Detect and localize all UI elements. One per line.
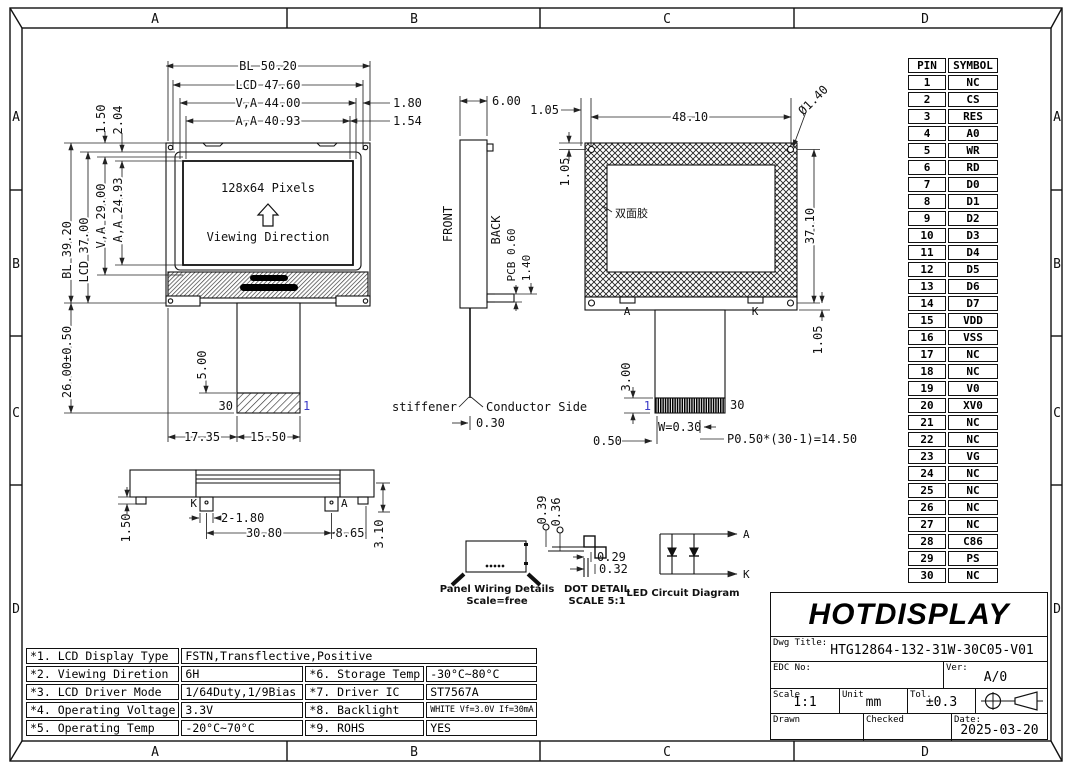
pin-table-cell-symbol: D6 — [948, 279, 998, 294]
dot-detail-scale: SCALE 5:1 — [569, 596, 626, 607]
pin-table-row: 28C86 — [908, 534, 998, 549]
pin-table-cell-symbol: C86 — [948, 534, 998, 549]
pin-table-cell-symbol: RD — [948, 160, 998, 175]
front-label: FRONT — [441, 206, 455, 242]
bottom-pin-a-label: A — [341, 497, 348, 510]
zone-right-d: D — [1053, 602, 1061, 617]
pin-table-header-row: PIN SYMBOL — [908, 58, 998, 73]
spec-value: ST7567A — [426, 684, 537, 700]
zone-top-c: C — [663, 12, 671, 27]
zone-right-a: A — [1053, 110, 1061, 125]
dim-aa-height: A,A 24.93 — [111, 177, 125, 242]
dim-30-80: 30.80 — [246, 526, 282, 540]
pin-table-row: 19V0 — [908, 381, 998, 396]
dim-1-05-top: 1.05 — [530, 103, 559, 117]
pin-table-cell-pin: 10 — [908, 228, 946, 243]
drawing-sheet: A B C D A B C D A B C D A B C D — [0, 0, 1073, 770]
pin-table-row: 6RD — [908, 160, 998, 175]
zone-right-b: B — [1053, 257, 1061, 272]
panel-wiring-title: Panel Wiring Details — [440, 584, 555, 595]
spec-value: 3.3V — [181, 702, 303, 718]
pin-table-header-pin: PIN — [908, 58, 946, 73]
pin-table-cell-symbol: D5 — [948, 262, 998, 277]
pin-table-row: 9D2 — [908, 211, 998, 226]
pin-table-cell-symbol: XV0 — [948, 398, 998, 413]
dim-1-50: 1.50 — [94, 105, 108, 134]
pin-table-cell-symbol: D4 — [948, 245, 998, 260]
pin-table-cell-symbol: NC — [948, 500, 998, 515]
pin-table-cell-pin: 7 — [908, 177, 946, 192]
spec-row: *3. LCD Driver Mode 1/64Duty,1/9Bias *7.… — [26, 684, 537, 700]
pin-table-row: 24NC — [908, 466, 998, 481]
pin-table-cell-pin: 9 — [908, 211, 946, 226]
dim-0-32: 0.32 — [599, 562, 628, 576]
pin-table-cell-symbol: NC — [948, 415, 998, 430]
dim-8-65: 8.65 — [336, 526, 365, 540]
spec-label: *8. Backlight — [305, 702, 424, 718]
checked-label: Checked — [866, 715, 904, 725]
led-anode-label: A — [743, 528, 750, 541]
dim-1-05-bottom: 1.05 — [811, 326, 825, 355]
led-circuit-linework — [660, 534, 737, 574]
pin-table-cell-symbol: NC — [948, 517, 998, 532]
led-circuit-title: LED Circuit Diagram — [626, 588, 739, 599]
tolerance-label: Tol. — [910, 690, 932, 700]
tab-k-label: K — [752, 305, 759, 318]
unit-label: Unit — [842, 690, 864, 700]
dim-15-50: 15.50 — [250, 430, 286, 444]
dim-0-50: 0.50 — [593, 434, 622, 448]
pin-table-cell-pin: 18 — [908, 364, 946, 379]
pin-table-cell-symbol: PS — [948, 551, 998, 566]
pin-table-cell-pin: 5 — [908, 143, 946, 158]
pin-table-header-symbol: SYMBOL — [948, 58, 998, 73]
dim-lcd-height: LCD 37.00 — [77, 217, 91, 282]
display-resolution-text: 128x64 Pixels — [221, 181, 315, 195]
pin-table-row: 22NC — [908, 432, 998, 447]
pin-table-cell-symbol: NC — [948, 483, 998, 498]
zone-left-c: C — [12, 406, 20, 421]
pin-table-row: 29PS — [908, 551, 998, 566]
back-pin-30-label: 30 — [730, 398, 744, 412]
dim-2-04: 2.04 — [111, 106, 125, 135]
pin-table-cell-pin: 11 — [908, 245, 946, 260]
dim-1-80: 1.80 — [393, 96, 422, 110]
pin-table-row: 14D7 — [908, 296, 998, 311]
panel-wiring-scale: Scale=free — [466, 596, 528, 607]
pin-table-cell-symbol: VG — [948, 449, 998, 464]
pin-table-row: 5WR — [908, 143, 998, 158]
spec-value: -20°C~70°C — [181, 720, 303, 736]
pin-table-cell-pin: 16 — [908, 330, 946, 345]
pin-table-row: 16VSS — [908, 330, 998, 345]
spec-label: *3. LCD Driver Mode — [26, 684, 179, 700]
dwg-title-label: Dwg Title: — [773, 638, 827, 648]
panel-wiring-detail-linework — [452, 541, 540, 585]
zone-left-d: D — [12, 602, 20, 617]
pin-table-cell-symbol: D3 — [948, 228, 998, 243]
spec-value: FSTN,Transflective,Positive — [181, 648, 537, 664]
dim-hole-diameter: Ø1.40 — [795, 82, 830, 117]
viewing-direction-text: Viewing Direction — [207, 230, 330, 244]
pin-table-cell-pin: 6 — [908, 160, 946, 175]
zone-top-d: D — [921, 12, 929, 27]
spec-value: 6H — [181, 666, 303, 682]
pin-table-cell-symbol: D2 — [948, 211, 998, 226]
pin-table-cell-pin: 3 — [908, 109, 946, 124]
pin-table-cell-pin: 4 — [908, 126, 946, 141]
pin-table-cell-pin: 26 — [908, 500, 946, 515]
zone-top-a: A — [151, 12, 159, 27]
back-view-linework — [585, 143, 797, 413]
pin-table-row: 12D5 — [908, 262, 998, 277]
zone-bottom-c: C — [663, 745, 671, 760]
pin-table-row: 11D4 — [908, 245, 998, 260]
pin-table-cell-symbol: D7 — [948, 296, 998, 311]
pin-table-cell-pin: 27 — [908, 517, 946, 532]
pin-30-label: 30 — [219, 399, 233, 413]
pin-table-cell-symbol: V0 — [948, 381, 998, 396]
pin-table-cell-pin: 8 — [908, 194, 946, 209]
dot-detail-title: DOT DETAIL — [564, 584, 631, 595]
dim-tail-5-00: 5.00 — [195, 351, 209, 380]
spec-label: *7. Driver IC — [305, 684, 424, 700]
spec-value: -30°C~80°C — [426, 666, 537, 682]
dim-2-1-80: 2-1.80 — [221, 511, 264, 525]
pin-table-cell-pin: 14 — [908, 296, 946, 311]
bottom-pin-k-label: K — [190, 497, 197, 510]
spec-label: *5. Operating Temp — [26, 720, 179, 736]
dim-total-height: 26.00±0.50 — [60, 326, 74, 398]
pin-table-row: 8D1 — [908, 194, 998, 209]
pin-table-cell-pin: 1 — [908, 75, 946, 90]
dim-3-00: 3.00 — [619, 363, 633, 392]
dim-1-05-left: 1.05 — [558, 158, 572, 187]
spec-row: *5. Operating Temp -20°C~70°C *9. ROHS Y… — [26, 720, 537, 736]
dim-pin-width: W=0.30 — [658, 420, 701, 434]
zone-bottom-d: D — [921, 745, 929, 760]
projection-symbol-icon — [979, 690, 1045, 712]
pin-table-cell-pin: 24 — [908, 466, 946, 481]
dim-lcd-width: LCD 47.60 — [235, 78, 300, 92]
dim-3-10: 3.10 — [372, 520, 386, 549]
tab-a-label: A — [624, 305, 631, 318]
pin-table-row: 18NC — [908, 364, 998, 379]
pin-table-row: 13D6 — [908, 279, 998, 294]
pin-table-cell-pin: 25 — [908, 483, 946, 498]
zone-left-b: B — [12, 257, 20, 272]
pin-table-cell-symbol: A0 — [948, 126, 998, 141]
spec-table: *1. LCD Display Type FSTN,Transflective,… — [24, 646, 539, 738]
spec-row: *1. LCD Display Type FSTN,Transflective,… — [26, 648, 537, 664]
pin-table-row: 26NC — [908, 500, 998, 515]
back-label: BACK — [489, 215, 503, 245]
pin-table-row: 20XV0 — [908, 398, 998, 413]
dim-side-width: 6.00 — [492, 94, 521, 108]
pin-table-row: 4A0 — [908, 126, 998, 141]
pin-table: PIN SYMBOL 1NC2CS3RES4A05WR6RD7D08D19D21… — [906, 56, 1000, 585]
spec-label: *4. Operating Voltage — [26, 702, 179, 718]
pin-table-cell-pin: 20 — [908, 398, 946, 413]
spec-row: *4. Operating Voltage 3.3V *8. Backlight… — [26, 702, 537, 718]
pin-table-cell-pin: 17 — [908, 347, 946, 362]
pin-table-cell-pin: 30 — [908, 568, 946, 583]
conductor-side-label: Conductor Side — [486, 400, 587, 414]
bottom-view-texts: 1.50 K A 2-1.80 30.80 8.65 3.10 — [119, 497, 386, 548]
pin-table-row: 27NC — [908, 517, 998, 532]
pin-table-row: 2CS — [908, 92, 998, 107]
pin-table-cell-pin: 2 — [908, 92, 946, 107]
pin-table-cell-pin: 29 — [908, 551, 946, 566]
spec-value: 1/64Duty,1/9Bias — [181, 684, 303, 700]
company-logo: HOTDISPLAY — [771, 598, 1047, 632]
pin-table-cell-pin: 22 — [908, 432, 946, 447]
pin-1-label: 1 — [303, 399, 310, 413]
spec-label: *9. ROHS — [305, 720, 424, 736]
pin-table-cell-symbol: CS — [948, 92, 998, 107]
spec-value: YES — [426, 720, 537, 736]
pin-table-cell-symbol: NC — [948, 347, 998, 362]
zone-left-a: A — [12, 110, 20, 125]
dim-0-39: 0.39 — [535, 496, 549, 525]
dim-0-30: 0.30 — [476, 416, 505, 430]
dim-1-54: 1.54 — [393, 114, 422, 128]
pin-table-cell-pin: 13 — [908, 279, 946, 294]
spec-row: *2. Viewing Diretion 6H *6. Storage Temp… — [26, 666, 537, 682]
pin-table-cell-symbol: D0 — [948, 177, 998, 192]
pin-table-cell-pin: 21 — [908, 415, 946, 430]
double-sided-tape-label: 双面胶 — [615, 206, 648, 220]
pin-table-row: 30NC — [908, 568, 998, 583]
zone-top-b: B — [410, 12, 418, 27]
dim-va-width: V,A 44.00 — [235, 96, 300, 110]
scale-label: Scale — [773, 690, 800, 700]
drawn-label: Drawn — [773, 715, 800, 725]
pin-table-cell-symbol: D1 — [948, 194, 998, 209]
led-cathode-label: K — [743, 568, 750, 581]
pin-table-cell-symbol: VSS — [948, 330, 998, 345]
pin-table-cell-pin: 28 — [908, 534, 946, 549]
pin-table-cell-pin: 12 — [908, 262, 946, 277]
dim-1-40: 1.40 — [520, 255, 533, 282]
date-label: Date: — [954, 715, 981, 725]
stiffener-label: stiffener — [392, 400, 457, 414]
dim-17-35: 17.35 — [184, 430, 220, 444]
title-block: HOTDISPLAY Dwg Title: HTG12864-132-31W-3… — [770, 592, 1048, 740]
pin-table-row: 1NC — [908, 75, 998, 90]
pin-table-cell-pin: 23 — [908, 449, 946, 464]
pin-table-row: 10D3 — [908, 228, 998, 243]
dim-bl-width: BL 50.20 — [239, 59, 297, 73]
spec-label: *2. Viewing Diretion — [26, 666, 179, 682]
pcb-thickness-label: PCB 0.60 — [505, 229, 518, 282]
dim-aa-width: A,A 40.93 — [235, 114, 300, 128]
dim-pitch: P0.50*(30-1)=14.50 — [727, 432, 857, 446]
pin-table-row: 21NC — [908, 415, 998, 430]
version-label: Ver: — [946, 663, 968, 673]
pin-table-row: 7D0 — [908, 177, 998, 192]
zone-right-c: C — [1053, 406, 1061, 421]
bottom-view-linework — [130, 470, 374, 511]
zone-bottom-a: A — [151, 745, 159, 760]
pin-table-cell-symbol: NC — [948, 466, 998, 481]
pin-table-cell-pin: 19 — [908, 381, 946, 396]
dim-back-width: 48.10 — [672, 110, 708, 124]
pin-table-row: 25NC — [908, 483, 998, 498]
pin-table-cell-symbol: NC — [948, 568, 998, 583]
dim-bl-height: BL 39.20 — [60, 221, 74, 279]
pin-table-cell-symbol: RES — [948, 109, 998, 124]
zone-bottom-b: B — [410, 745, 418, 760]
dim-va-height: V,A 29.00 — [94, 183, 108, 248]
pin-table-row: 17NC — [908, 347, 998, 362]
dim-back-height: 37.10 — [803, 208, 817, 244]
pin-table-cell-symbol: WR — [948, 143, 998, 158]
spec-label: *1. LCD Display Type — [26, 648, 179, 664]
pin-table-cell-pin: 15 — [908, 313, 946, 328]
pin-table-row: 23VG — [908, 449, 998, 464]
back-pin-1-label: 1 — [644, 399, 651, 413]
pin-table-body: 1NC2CS3RES4A05WR6RD7D08D19D210D311D412D5… — [908, 75, 998, 583]
dim-bottom-1-50: 1.50 — [119, 514, 133, 543]
pin-table-cell-symbol: NC — [948, 364, 998, 379]
pin-table-row: 3RES — [908, 109, 998, 124]
spec-value: WHITE Vf=3.0V If=30mA — [426, 702, 537, 718]
pin-table-row: 15VDD — [908, 313, 998, 328]
dim-0-36: 0.36 — [549, 498, 563, 527]
pin-table-cell-symbol: VDD — [948, 313, 998, 328]
pin-table-cell-symbol: NC — [948, 432, 998, 447]
spec-label: *6. Storage Temp — [305, 666, 424, 682]
pin-table-cell-symbol: NC — [948, 75, 998, 90]
edc-no-label: EDC No: — [773, 663, 811, 673]
